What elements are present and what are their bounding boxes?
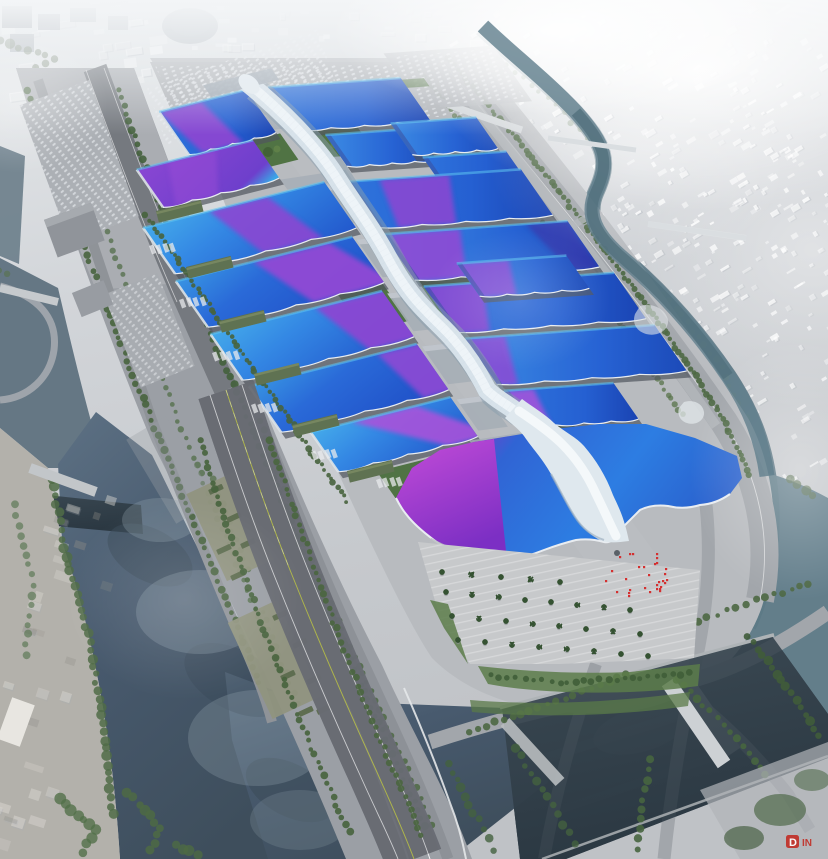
svg-text:D: D (789, 837, 797, 849)
svg-text:IN: IN (802, 838, 812, 849)
